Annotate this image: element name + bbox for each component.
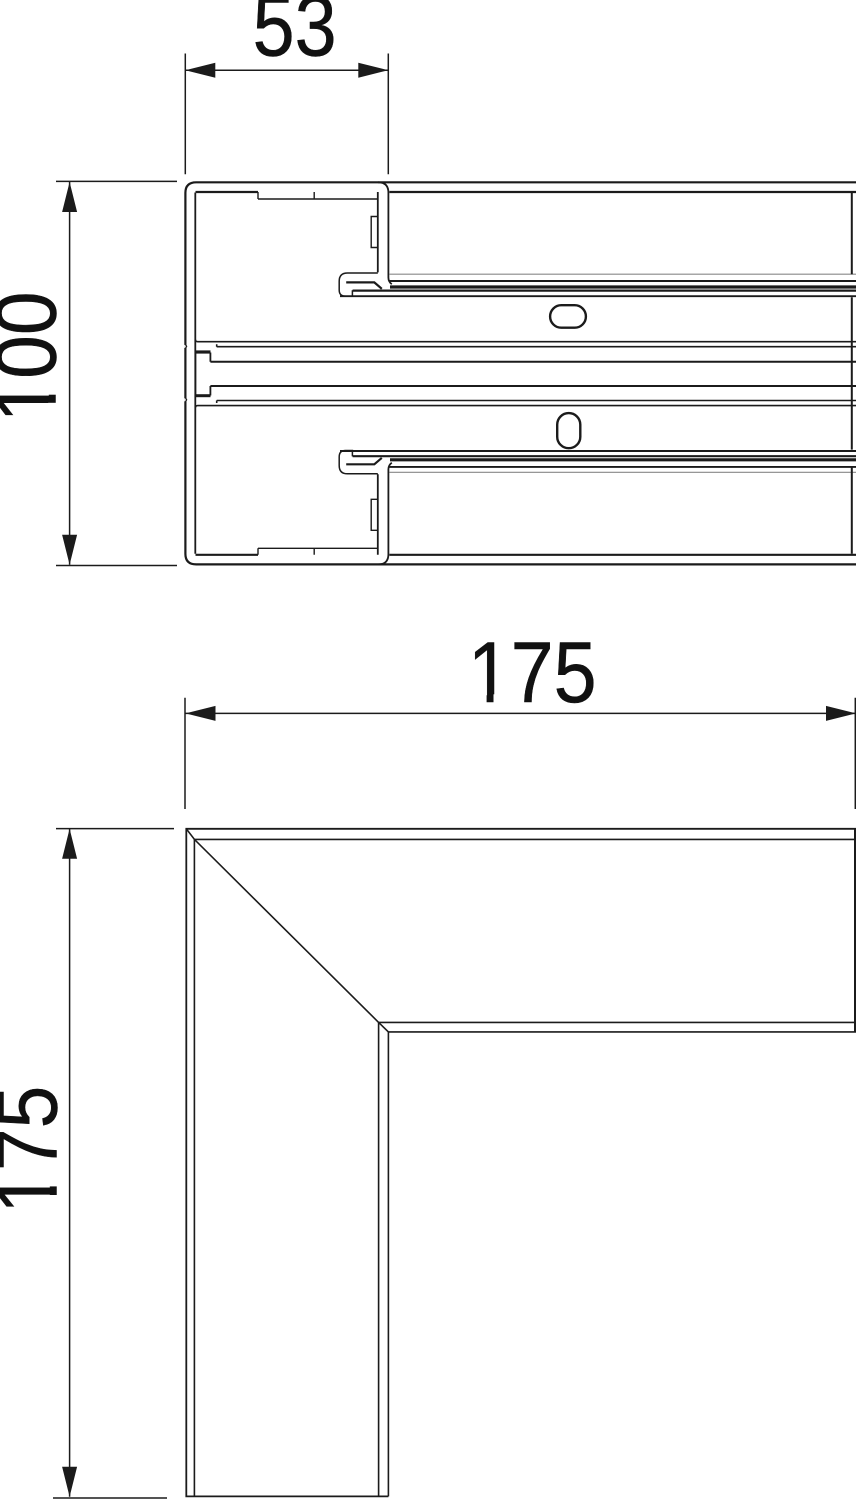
svg-text:175: 175 xyxy=(468,625,597,721)
svg-text:100: 100 xyxy=(0,292,75,423)
svg-text:53: 53 xyxy=(253,0,337,74)
svg-text:175: 175 xyxy=(0,1086,76,1214)
